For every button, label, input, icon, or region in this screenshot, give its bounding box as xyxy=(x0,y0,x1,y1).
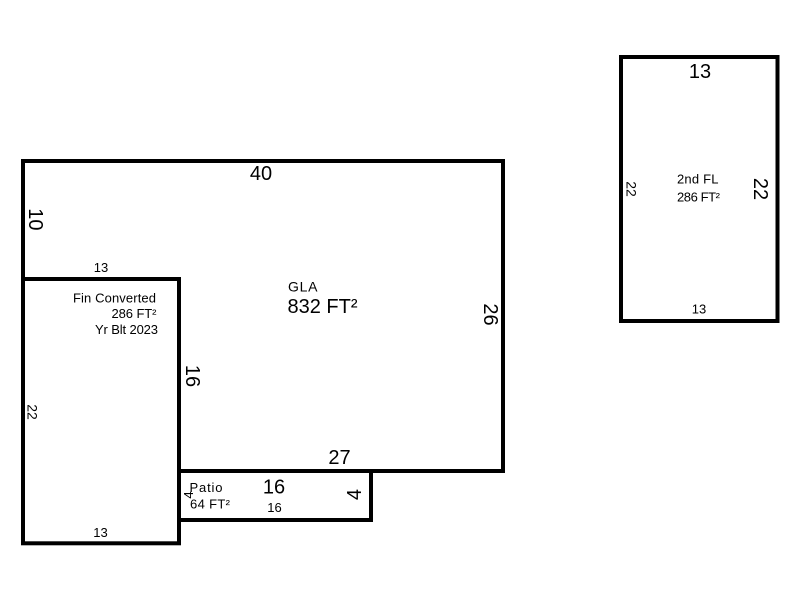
svg-text:832 FT²: 832 FT² xyxy=(288,296,358,318)
svg-text:286 FT²: 286 FT² xyxy=(112,306,158,321)
svg-text:16: 16 xyxy=(263,477,285,499)
svg-text:13: 13 xyxy=(692,302,706,317)
svg-text:286 FT²: 286 FT² xyxy=(677,190,721,205)
svg-text:2nd FL: 2nd FL xyxy=(677,172,719,187)
svg-text:Fin Converted: Fin Converted xyxy=(73,291,156,306)
svg-text:16: 16 xyxy=(267,500,281,515)
svg-text:4: 4 xyxy=(344,489,366,500)
svg-text:26: 26 xyxy=(479,303,501,325)
svg-text:64 FT²: 64 FT² xyxy=(190,497,231,512)
svg-text:22: 22 xyxy=(624,181,640,197)
svg-text:40: 40 xyxy=(250,163,272,185)
svg-text:16: 16 xyxy=(181,365,203,387)
svg-text:4: 4 xyxy=(181,491,196,498)
svg-text:13: 13 xyxy=(94,260,108,275)
svg-text:Yr Blt 2023: Yr Blt 2023 xyxy=(95,322,158,337)
svg-text:22: 22 xyxy=(25,404,41,420)
svg-text:GLA: GLA xyxy=(288,279,318,295)
svg-text:13: 13 xyxy=(93,525,107,540)
svg-text:13: 13 xyxy=(689,61,711,83)
svg-text:22: 22 xyxy=(749,178,771,200)
svg-text:27: 27 xyxy=(328,447,350,469)
svg-text:10: 10 xyxy=(24,208,46,230)
